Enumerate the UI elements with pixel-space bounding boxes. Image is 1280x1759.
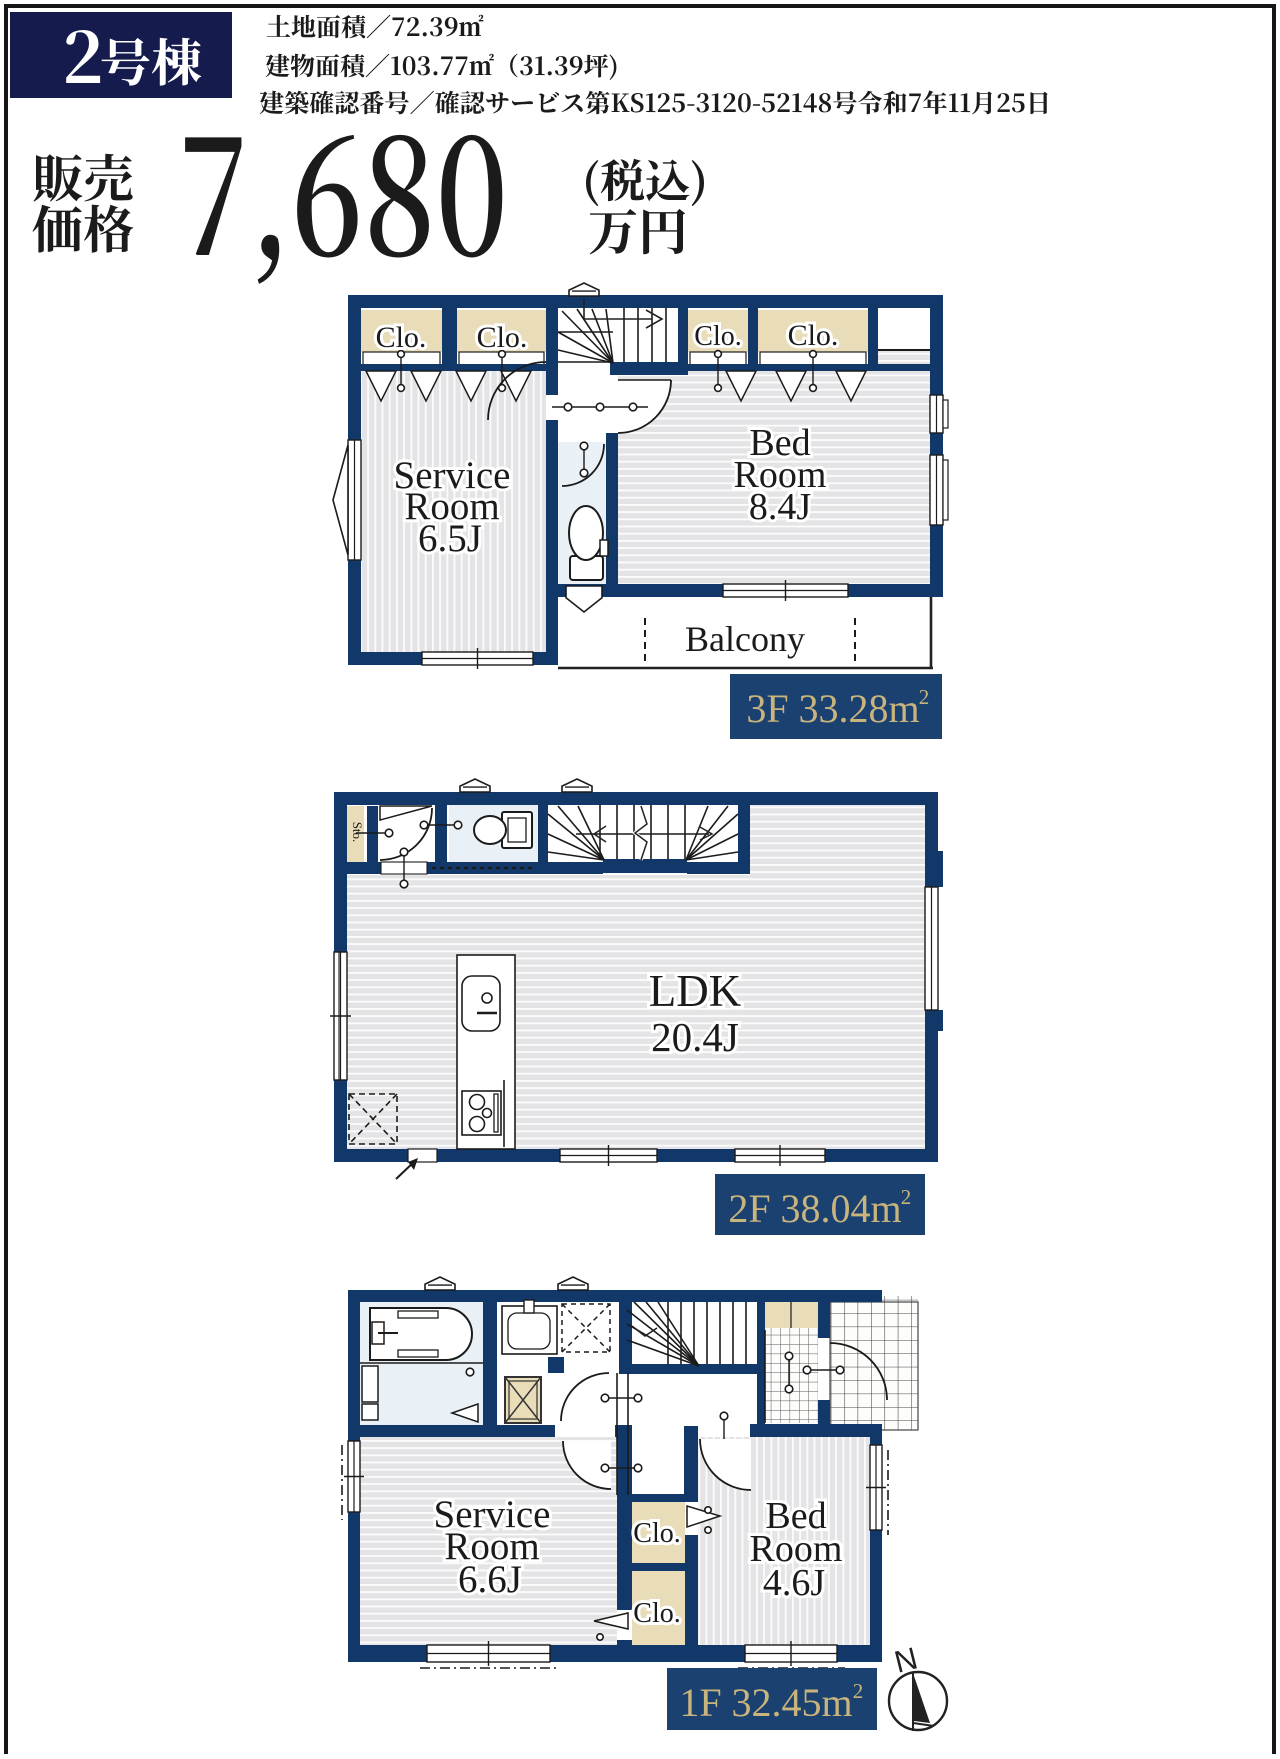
svg-text:Sto.: Sto.: [350, 822, 365, 843]
svg-text:6.6J: 6.6J: [458, 1558, 522, 1601]
svg-text:Balcony: Balcony: [685, 619, 805, 659]
svg-text:2: 2: [901, 1185, 912, 1209]
svg-text:8.4J: 8.4J: [749, 486, 811, 528]
svg-text:2: 2: [853, 1679, 864, 1703]
svg-text:3F 33.28m: 3F 33.28m: [746, 686, 919, 731]
svg-text:Clo.: Clo.: [788, 319, 839, 352]
svg-text:4.6J: 4.6J: [763, 1562, 825, 1604]
svg-text:Clo.: Clo.: [633, 1598, 680, 1629]
svg-text:20.4J: 20.4J: [651, 1014, 739, 1060]
svg-text:LDK: LDK: [649, 966, 742, 1016]
svg-text:Clo.: Clo.: [477, 321, 528, 354]
svg-text:1F 32.45m: 1F 32.45m: [679, 1680, 852, 1725]
svg-text:Clo.: Clo.: [633, 1518, 680, 1549]
svg-text:Clo.: Clo.: [694, 321, 741, 352]
svg-text:Clo.: Clo.: [376, 321, 427, 354]
svg-text:2F 38.04m: 2F 38.04m: [728, 1186, 901, 1231]
svg-text:2: 2: [919, 685, 930, 709]
svg-text:6.5J: 6.5J: [418, 517, 482, 560]
